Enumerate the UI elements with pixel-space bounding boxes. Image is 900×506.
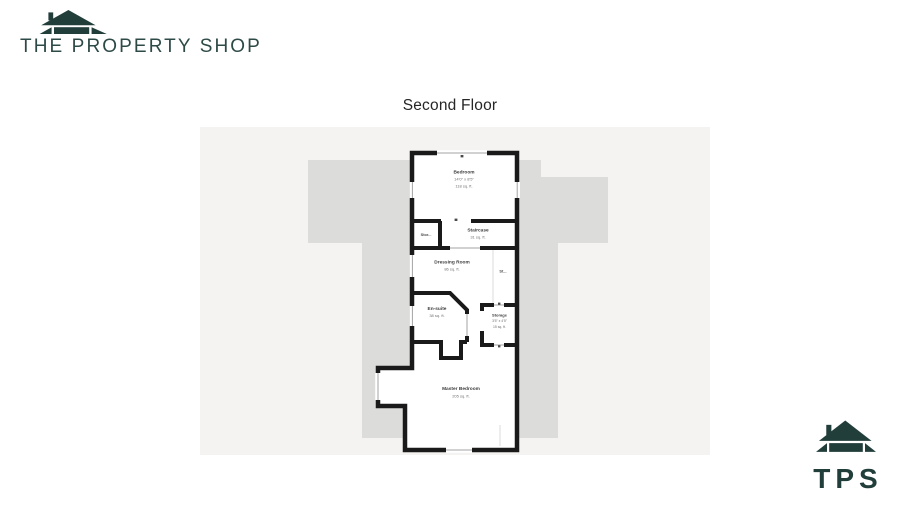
room-label-ensuite: En-suite — [428, 306, 447, 312]
property-shop-logo: THE PROPERTY SHOP — [20, 10, 250, 58]
room-area-ensuite: 38 sq. ft. — [429, 313, 444, 318]
room-area-staircase: 31 sq. ft. — [470, 235, 485, 240]
room-dims-storage: 3'5" x 4'5" — [492, 319, 508, 323]
room-area-dressing-room: 86 sq. ft. — [444, 267, 459, 272]
room-label-dressing-room: Dressing Room — [434, 260, 469, 266]
house-icon — [813, 419, 879, 457]
floor-plan: Bedroom 14'0" x 8'5" 118 sq. ft. Stor...… — [200, 127, 710, 455]
room-label-staircase: Staircase — [467, 228, 489, 234]
room-dims-bedroom: 14'0" x 8'5" — [454, 177, 474, 182]
room-label-storage: Storage — [492, 313, 508, 318]
room-area-storage: 15 sq. ft. — [493, 325, 506, 329]
page-title: Second Floor — [0, 97, 900, 115]
room-label-master-bedroom: Master Bedroom — [442, 386, 480, 392]
room-area-bedroom: 118 sq. ft. — [455, 184, 472, 189]
room-label-storage-closet: Stor... — [421, 232, 432, 237]
tps-wordmark: TPS — [812, 463, 884, 495]
logo-wordmark: THE PROPERTY SHOP — [20, 36, 250, 58]
room-label-bedroom: Bedroom — [453, 170, 474, 176]
room-label-st-closet: St... — [499, 269, 506, 274]
tps-watermark: TPS — [808, 419, 884, 495]
room-area-master-bedroom: 205 sq. ft. — [452, 394, 470, 399]
house-icon — [38, 10, 110, 34]
